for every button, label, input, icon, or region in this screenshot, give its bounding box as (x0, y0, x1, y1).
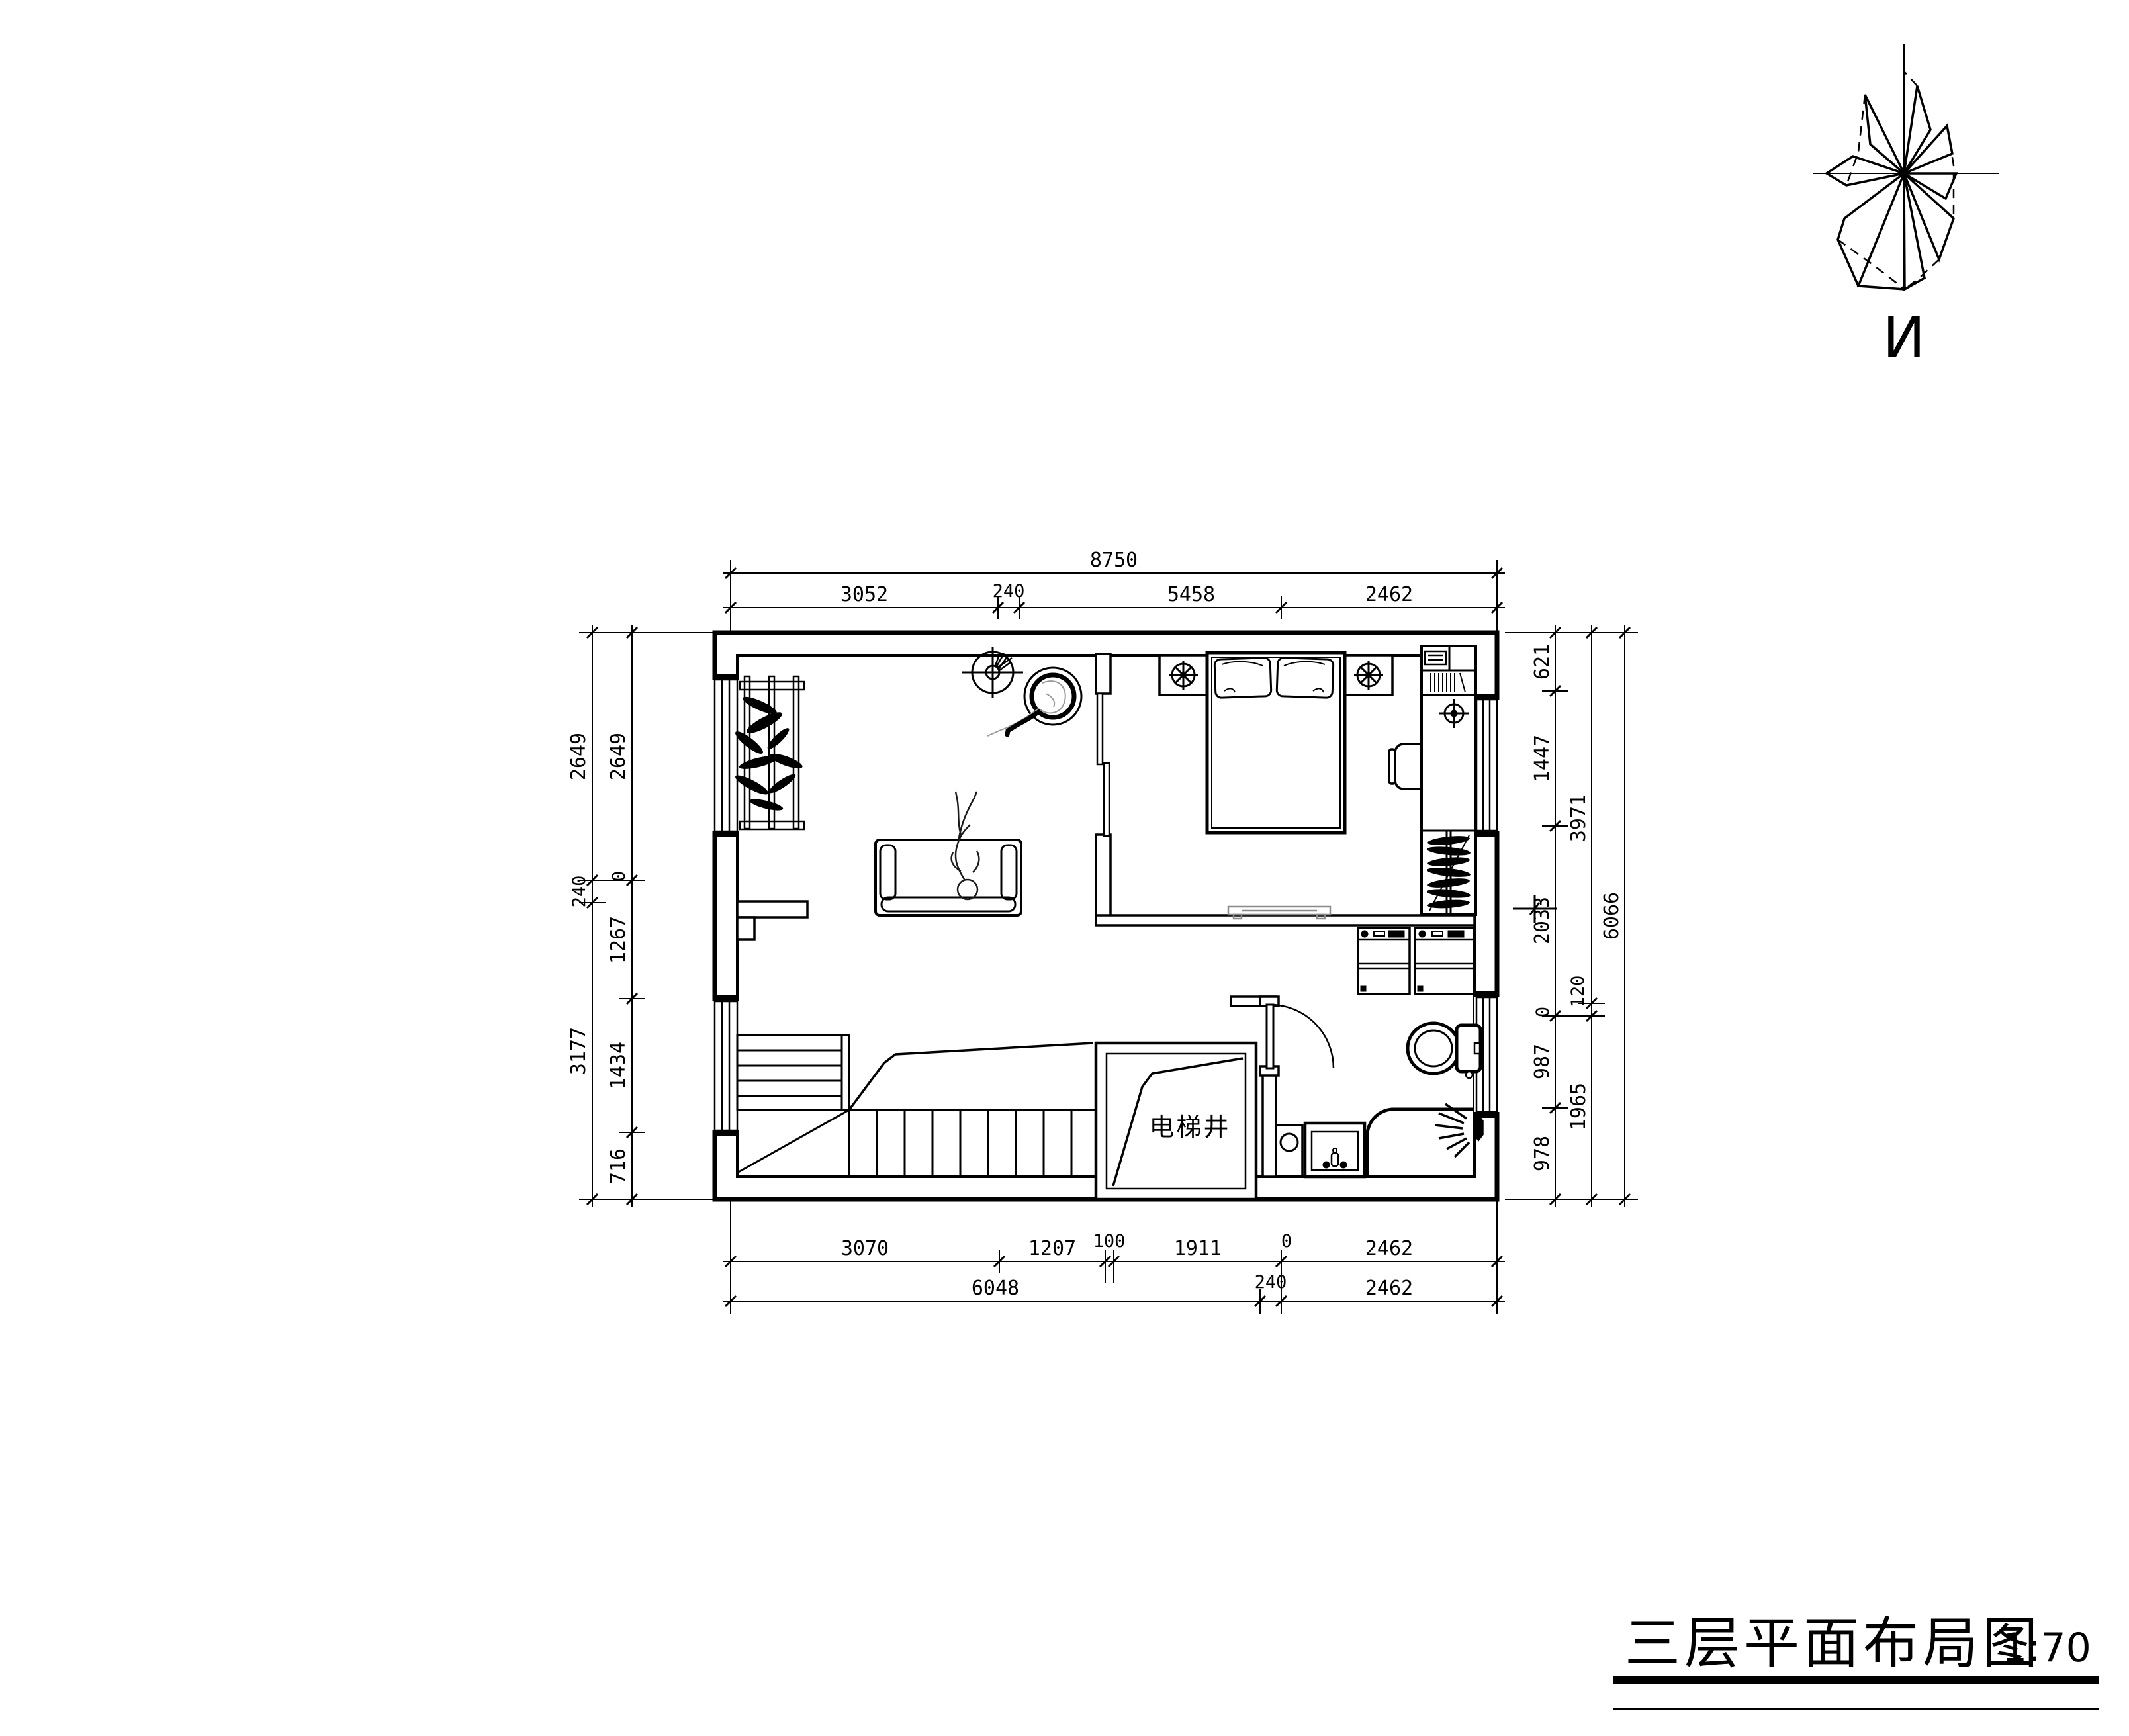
pillow (1277, 658, 1334, 698)
dim-left-inner0: 2649 (607, 733, 630, 780)
north-arrow-star (1827, 86, 1956, 289)
dim-bottom-inner5: 2462 (1365, 1237, 1413, 1260)
person-on-sofa-figure (952, 792, 979, 899)
staircase (737, 1035, 1096, 1177)
dim-left-outer1: 240 (569, 876, 590, 908)
dim-bottom-inner4: 0 (1281, 1231, 1292, 1252)
shower-area (1367, 1104, 1482, 1177)
pillow (1214, 658, 1271, 698)
dim-bottom-outer2: 2462 (1365, 1277, 1413, 1300)
window-right-bedroom (1474, 694, 1500, 837)
bedroom-sliding-door (1097, 694, 1109, 836)
dim-left-inner3: 1434 (607, 1042, 630, 1089)
stair-side-wall (842, 1035, 849, 1110)
dim-left-inner1: 0 (609, 871, 629, 882)
dim-right-middle0: 3971 (1567, 794, 1590, 842)
window-left-lower (712, 995, 740, 1136)
floor-plan-svg: 电梯井 (0, 0, 2129, 1736)
dim-left-inner4: 716 (607, 1148, 630, 1184)
bedroom-bottom-wall (1096, 915, 1474, 925)
dim-right-inner2: 2033 (1531, 897, 1554, 944)
nightstand-left (1159, 655, 1207, 695)
dim-bottom-inner2: 100 (1093, 1231, 1126, 1252)
dim-right-middle1: 120 (1568, 976, 1588, 1008)
sofa (876, 792, 1021, 915)
vanity-sink (1276, 1123, 1365, 1177)
drawing-title: 三层平面布局图 (1625, 1611, 2042, 1676)
dim-left-outer2: 3177 (567, 1027, 590, 1075)
elevator-shaft: 电梯井 (1096, 1043, 1256, 1199)
title-underline (1613, 1676, 2099, 1710)
dim-right-middle2: 1965 (1567, 1083, 1590, 1130)
dim-right-inner5: 978 (1531, 1136, 1554, 1171)
dim-top-seg3: 2462 (1365, 583, 1413, 606)
stair-break-line (849, 1043, 1093, 1110)
bed (1207, 653, 1345, 833)
dim-left-inner2: 1267 (607, 916, 630, 964)
hall-cabinet-left (1358, 928, 1410, 994)
dim-top-seg0: 3052 (840, 583, 888, 606)
dim-right-inner1: 1447 (1531, 735, 1554, 782)
partial-wall-stub (737, 901, 807, 940)
dim-bottom-outer0: 6048 (972, 1277, 1019, 1300)
drawing-scale: 1:70 (2002, 1625, 2091, 1671)
elevator-shaft-label: 电梯井 (1149, 1113, 1230, 1142)
stair-flight-line (737, 1110, 849, 1173)
dim-right-overall: 6066 (1600, 892, 1623, 940)
floor-plan-page: 电梯井 (0, 0, 2129, 1736)
dimension-left (579, 625, 715, 1207)
dim-bottom-outer1: 240 (1255, 1272, 1287, 1293)
window-left-upper (712, 674, 740, 837)
dim-bottom-inner0: 3070 (841, 1237, 889, 1260)
north-label: N (1883, 305, 1925, 371)
dim-top-seg1: 240 (993, 581, 1025, 602)
north-arrow (1813, 44, 1999, 291)
dim-right-inner0: 621 (1531, 644, 1554, 680)
dim-top-seg2: 5458 (1167, 583, 1215, 606)
hall-cabinet-right (1415, 928, 1474, 994)
dim-right-inner3: 0 (1533, 1007, 1553, 1017)
dim-left-outer0: 2649 (567, 733, 590, 780)
wardrobe (1422, 646, 1476, 915)
dim-right-inner4: 987 (1531, 1044, 1554, 1079)
bathroom-door (1267, 1005, 1334, 1068)
dim-bottom-inner3: 1911 (1174, 1237, 1222, 1260)
toilet (1408, 1023, 1480, 1078)
plant-rack (733, 676, 804, 829)
nightstand-right (1345, 655, 1392, 695)
dim-bottom-inner1: 1207 (1028, 1237, 1076, 1260)
dim-top-overall: 8750 (1090, 549, 1138, 572)
round-chair (987, 668, 1081, 736)
